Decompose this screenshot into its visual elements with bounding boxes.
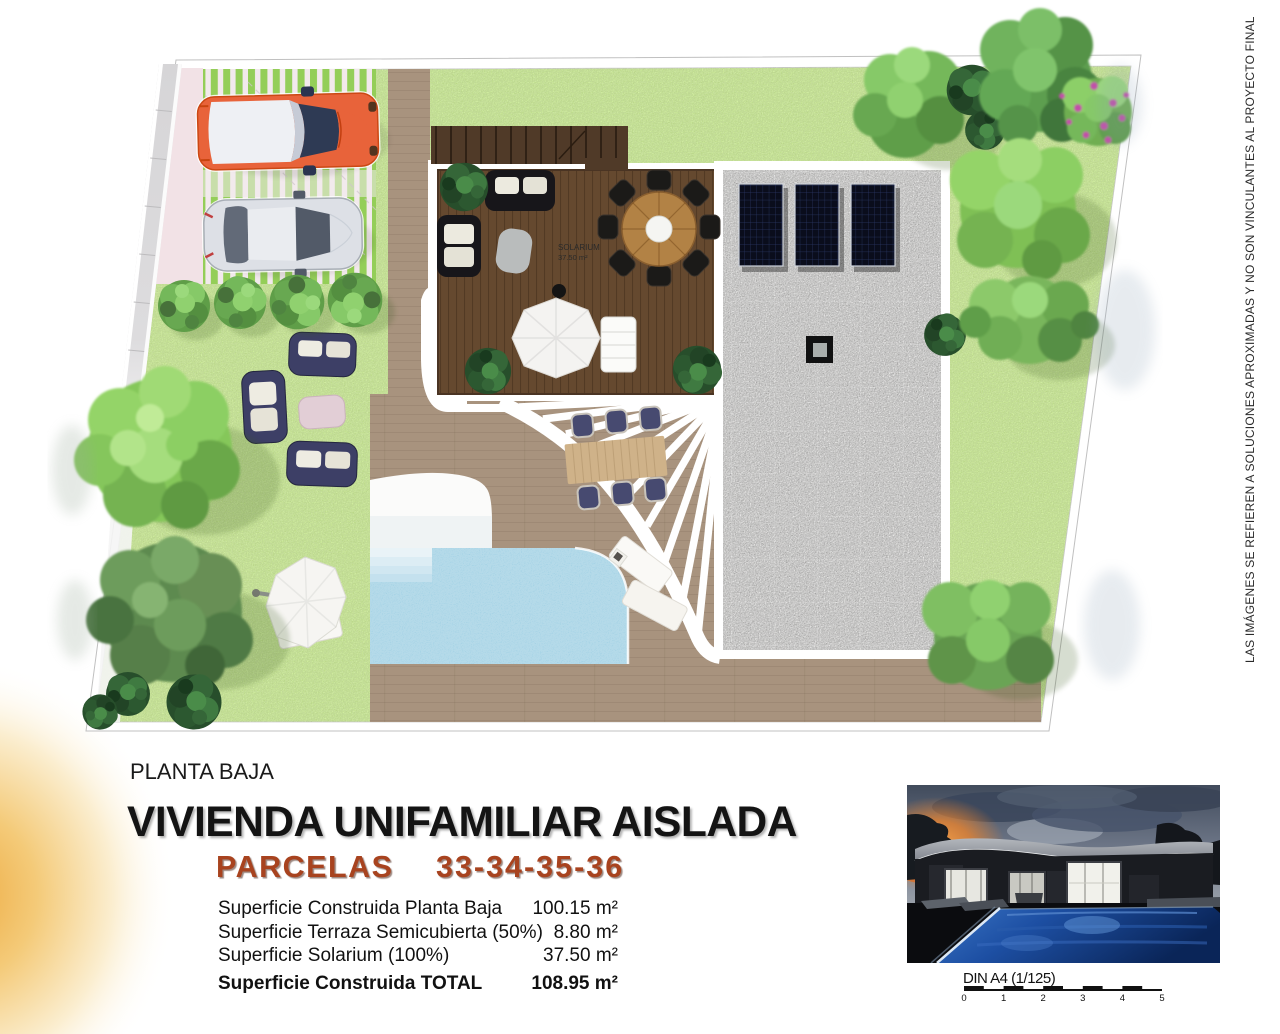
svg-text:2: 2 bbox=[1041, 993, 1046, 1004]
svg-text:0: 0 bbox=[961, 993, 966, 1004]
svg-text:37.50 m²: 37.50 m² bbox=[558, 253, 588, 262]
svg-text:1: 1 bbox=[1001, 993, 1006, 1004]
svg-text:4: 4 bbox=[1120, 993, 1125, 1004]
svg-text:3: 3 bbox=[1080, 993, 1085, 1004]
svg-text:5: 5 bbox=[1159, 993, 1164, 1004]
svg-text:SOLARIUM: SOLARIUM bbox=[558, 243, 600, 252]
